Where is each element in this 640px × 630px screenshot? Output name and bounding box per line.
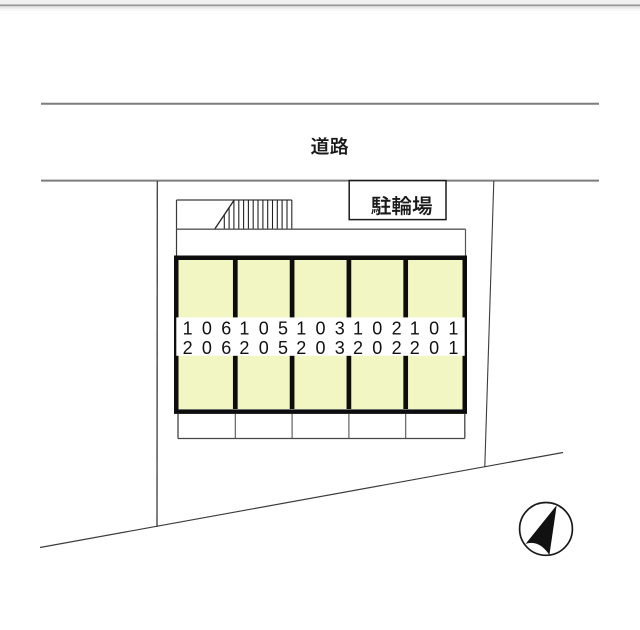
svg-text:0: 0 xyxy=(202,318,212,338)
svg-text:0: 0 xyxy=(202,338,212,358)
svg-text:1: 1 xyxy=(239,318,249,338)
svg-text:0: 0 xyxy=(315,338,325,358)
svg-text:2: 2 xyxy=(239,338,249,358)
svg-text:5: 5 xyxy=(278,338,288,358)
svg-text:2: 2 xyxy=(296,338,306,358)
svg-text:6: 6 xyxy=(221,318,231,338)
svg-text:1: 1 xyxy=(448,338,458,358)
svg-text:0: 0 xyxy=(372,338,382,358)
svg-text:0: 0 xyxy=(259,338,269,358)
svg-text:2: 2 xyxy=(392,318,402,338)
svg-text:5: 5 xyxy=(278,318,288,338)
svg-text:0: 0 xyxy=(429,338,439,358)
svg-text:0: 0 xyxy=(259,318,269,338)
svg-text:2: 2 xyxy=(392,338,402,358)
svg-text:1: 1 xyxy=(410,318,420,338)
svg-text:1: 1 xyxy=(296,318,306,338)
svg-text:0: 0 xyxy=(429,318,439,338)
svg-text:3: 3 xyxy=(335,338,345,358)
svg-text:2: 2 xyxy=(183,338,193,358)
svg-text:1: 1 xyxy=(448,318,458,338)
svg-text:1: 1 xyxy=(353,318,363,338)
svg-text:0: 0 xyxy=(372,318,382,338)
svg-text:2: 2 xyxy=(410,338,420,358)
svg-text:0: 0 xyxy=(315,318,325,338)
svg-text:1: 1 xyxy=(183,318,193,338)
svg-text:3: 3 xyxy=(335,318,345,338)
svg-text:6: 6 xyxy=(221,338,231,358)
svg-text:2: 2 xyxy=(353,338,363,358)
